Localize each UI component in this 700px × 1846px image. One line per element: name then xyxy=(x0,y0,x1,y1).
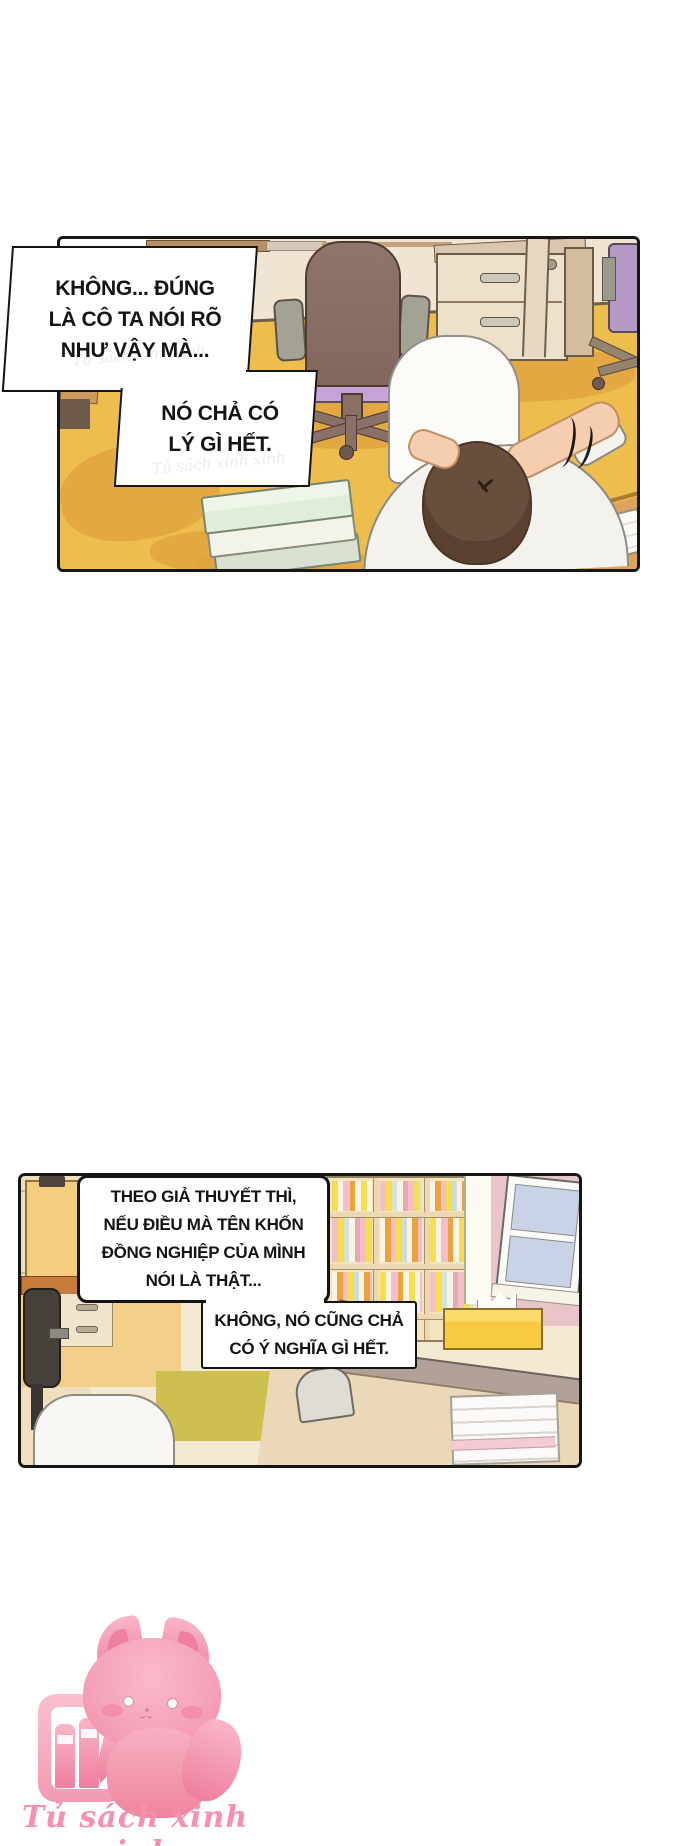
white-book-stack xyxy=(450,1392,560,1464)
speech-bubble-4: KHÔNG, NÓ CŨNG CHẢ CÓ Ý NGHĨA GÌ HẾT. xyxy=(201,1301,417,1369)
bubble-line: NÓ CHẢ CÓ xyxy=(161,398,278,429)
bubble-line: CÓ Ý NGHĨA GÌ HẾT. xyxy=(229,1335,388,1363)
chair-backrest xyxy=(305,241,401,387)
drawer-handle xyxy=(480,273,520,283)
drawer-handle xyxy=(480,317,520,327)
bubble-line: LÝ GÌ HẾT. xyxy=(168,429,271,460)
book-row xyxy=(380,1181,422,1211)
cat-blush xyxy=(101,1704,123,1717)
bubble-line: NÓI LÀ THẬT... xyxy=(146,1267,262,1295)
brand-footer: Tủ sách xinh xinh xyxy=(20,1590,250,1846)
chair-armrest-left xyxy=(273,298,307,362)
drawer-handle xyxy=(76,1326,98,1333)
cat-blush xyxy=(181,1706,203,1719)
book-row xyxy=(332,1181,372,1211)
bubble-merge-patch xyxy=(206,1297,324,1311)
cabinet-top-object xyxy=(39,1176,65,1187)
bubble-line: THEO GIẢ THUYẾT THÌ, xyxy=(111,1183,297,1211)
tissue-box xyxy=(443,1308,543,1350)
partial-chair-wheel xyxy=(592,377,605,390)
bubble-line: ĐỒNG NGHIỆP CỦA MÌNH xyxy=(102,1239,306,1267)
brand-text: Tủ sách xinh xinh xyxy=(20,1800,250,1846)
mascot-cat-icon xyxy=(75,1618,240,1813)
logo-book xyxy=(55,1724,75,1788)
stacked-books xyxy=(450,1392,560,1466)
cat-eye xyxy=(123,1696,134,1707)
bubble-line: KHÔNG... ĐÚNG xyxy=(55,273,214,304)
window xyxy=(495,1174,582,1298)
cat-mouth xyxy=(140,1712,146,1718)
speech-bubble-3: THEO GIẢ THUYẾT THÌ, NẾU ĐIỀU MÀ TÊN KHỐ… xyxy=(77,1175,330,1303)
partial-chair-arm xyxy=(602,257,616,301)
comic-page: Tủ sách xinh xinh KHÔNG... ĐÚNG LÀ CÔ TA… xyxy=(0,0,700,1846)
drawer-handle xyxy=(76,1304,98,1311)
shelf-board xyxy=(328,1212,480,1218)
cat-eye xyxy=(167,1698,178,1709)
slumped-person xyxy=(360,431,640,569)
book-label-band xyxy=(57,1735,73,1744)
cat-mouth xyxy=(147,1712,153,1718)
bubble-line: KHÔNG, NÓ CŨNG CHẢ xyxy=(214,1307,403,1335)
book-row xyxy=(332,1218,372,1262)
shelf-board xyxy=(328,1264,480,1270)
dark-chair-arm xyxy=(49,1328,69,1339)
desk-leg-post xyxy=(522,239,550,358)
chair-wheel xyxy=(339,445,354,460)
book-row xyxy=(380,1218,422,1262)
bubble-line: NẾU ĐIỀU MÀ TÊN KHỐN xyxy=(104,1211,304,1239)
bubble-line: NHƯ VẬY MÀ... xyxy=(61,335,209,366)
bubble-line: LÀ CÔ TA NÓI RÕ xyxy=(49,304,222,335)
bubble-merge-patch xyxy=(118,369,246,388)
white-chair-back xyxy=(33,1394,175,1468)
side-desk-front xyxy=(60,399,90,429)
